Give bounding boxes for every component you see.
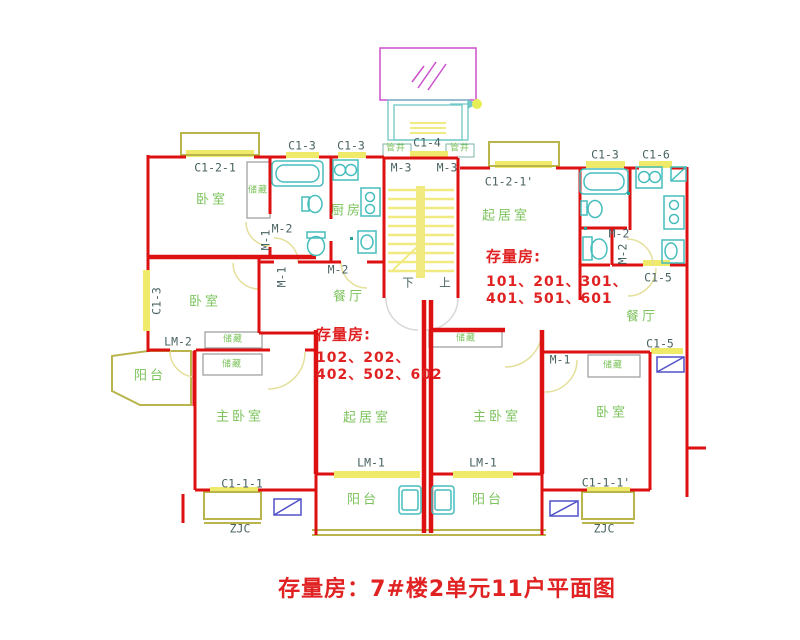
entrance-canopy [380,48,476,100]
balcony-washers [399,486,454,514]
kitchen-fixtures-right [636,167,686,263]
window-sills [143,150,683,493]
kitchen-fixtures-left [333,160,380,253]
bath-fixtures-right [580,169,628,260]
entry-marker-dot [472,99,482,109]
entrance-steps [410,123,446,133]
plan-title: 存量房：7#楼2单元11户平面图 [278,571,616,603]
floor-plan-canvas [0,0,800,640]
staircase [388,186,454,278]
bath-fixtures-left [272,161,325,256]
floor-plan-page: 卧室卧室卧室主卧室主卧室起居室起居室厨房餐厅餐厅阳台阳台阳台储藏储藏储藏储藏储藏… [0,0,800,640]
